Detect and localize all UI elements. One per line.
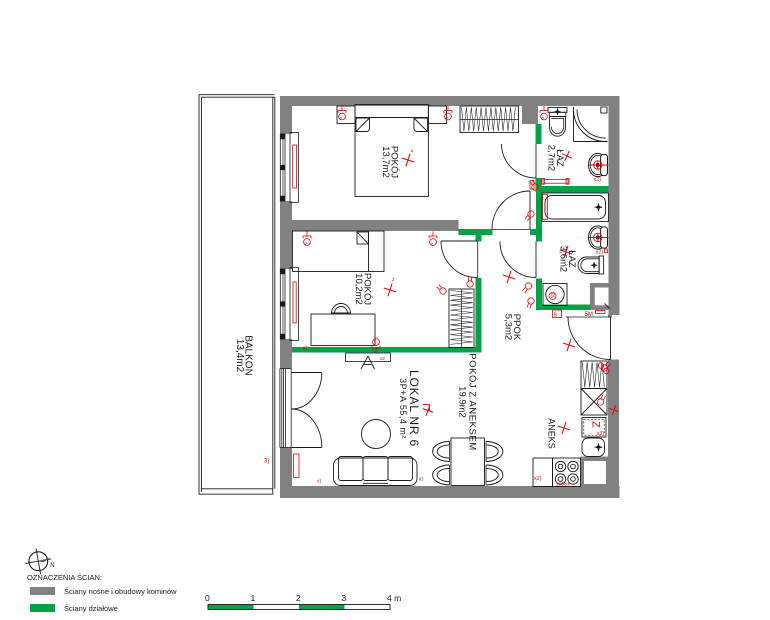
svg-text:3: 3 <box>342 593 347 603</box>
svg-text:19,9m2: 19,9m2 <box>457 386 468 418</box>
svg-text:LOKAL NR 6: LOKAL NR 6 <box>407 370 421 447</box>
svg-text:150cm: 150cm <box>556 482 570 488</box>
svg-text:3): 3) <box>264 459 269 465</box>
svg-text:x): x) <box>303 346 308 352</box>
svg-text:Ściany nośne i obudowy kominów: Ściany nośne i obudowy kominów <box>64 587 177 596</box>
svg-text:x3): x3) <box>597 431 604 437</box>
svg-text:3,6m2: 3,6m2 <box>558 246 569 272</box>
svg-text:(2: (2 <box>551 293 556 299</box>
svg-text:5M: 5M <box>585 312 593 318</box>
svg-text:x): x) <box>419 477 424 483</box>
svg-text:Z: Z <box>590 421 602 428</box>
svg-text:N: N <box>50 563 54 569</box>
svg-text:2,7m2: 2,7m2 <box>546 145 557 171</box>
svg-text:10,2m2: 10,2m2 <box>353 273 364 305</box>
svg-text:ANEKS: ANEKS <box>546 418 556 449</box>
svg-text:1: 1 <box>251 593 256 603</box>
svg-text:OZNACZENIA ŚCIAN:: OZNACZENIA ŚCIAN: <box>27 573 102 582</box>
svg-text:4 m: 4 m <box>387 593 401 603</box>
svg-text:13,7m2: 13,7m2 <box>380 146 391 178</box>
svg-text:Ściany działowe: Ściany działowe <box>64 604 118 613</box>
svg-text:2: 2 <box>392 277 395 282</box>
svg-text:3P+A 55,4 m²: 3P+A 55,4 m² <box>398 378 408 439</box>
svg-text:x): x) <box>317 479 322 485</box>
svg-text:a: a <box>411 148 414 153</box>
svg-text:x2): x2) <box>594 177 602 183</box>
svg-text:5,3m2: 5,3m2 <box>503 314 514 340</box>
svg-text:x2): x2) <box>596 250 604 256</box>
svg-text:x2): x2) <box>534 476 542 482</box>
svg-text:x2: x2 <box>380 356 385 361</box>
svg-text:0: 0 <box>205 593 210 603</box>
svg-text:13,4m2: 13,4m2 <box>234 339 245 373</box>
svg-text:2: 2 <box>296 593 301 603</box>
